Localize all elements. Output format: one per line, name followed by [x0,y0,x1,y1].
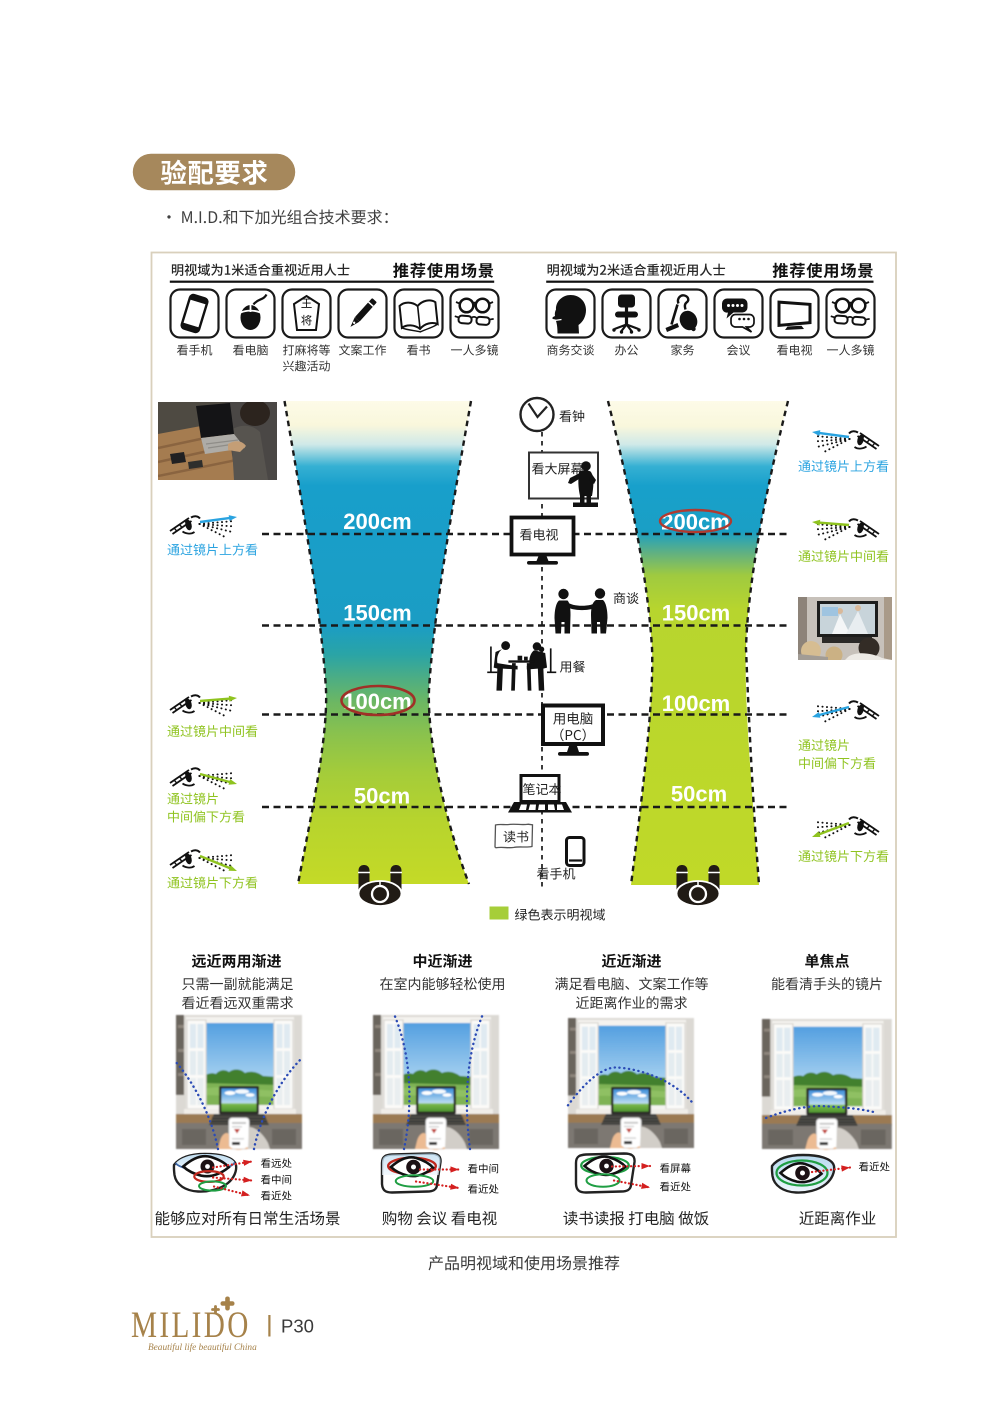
svg-text:MILIDO: MILIDO [131,1305,251,1346]
svg-text:50cm: 50cm [671,782,727,807]
svg-text:200cm: 200cm [343,509,412,534]
svg-text:Beautiful life beautiful China: Beautiful life beautiful China [148,1342,257,1353]
svg-text:50cm: 50cm [354,784,410,809]
svg-text:P30: P30 [281,1316,314,1337]
svg-text:150cm: 150cm [662,601,731,626]
svg-text:100cm: 100cm [662,691,731,716]
svg-text:150cm: 150cm [343,601,412,626]
